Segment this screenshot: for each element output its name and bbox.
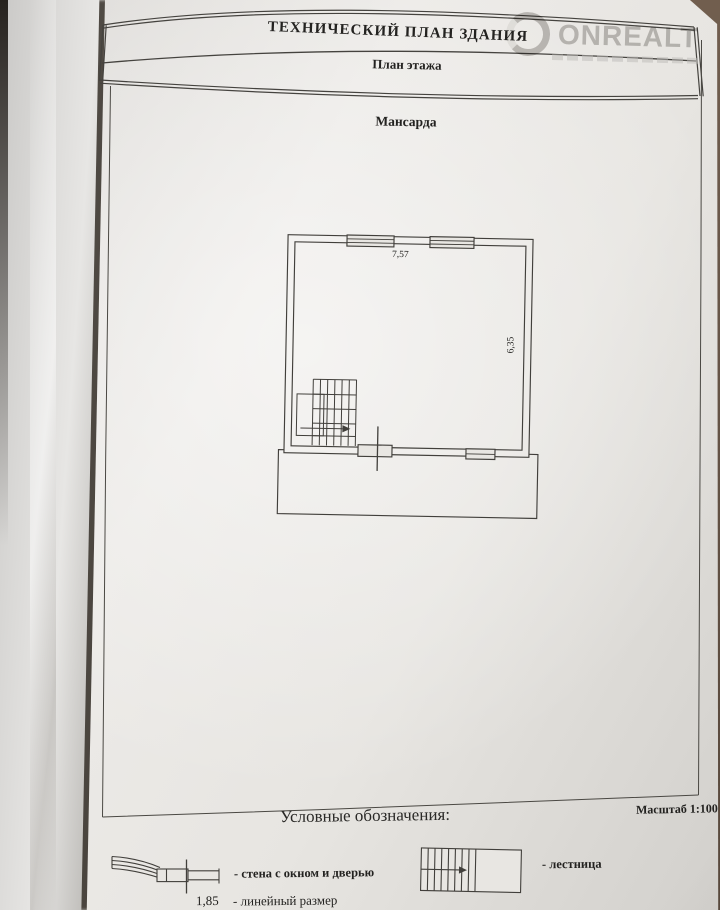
content-frame [103,40,702,817]
door-axis-line [377,426,378,470]
watermark-text: ONREALT [558,19,699,55]
legend-item-stairs-label: - лестница [542,857,602,873]
legend-item-wall-label: - стена с окном и дверью [234,865,374,881]
floor-label: Мансарда [358,113,454,131]
room-wall-inner [291,242,526,450]
door-opening-symbol [358,445,392,457]
window-symbol-top-left [347,235,394,247]
plan-drawing-layer [0,0,720,910]
legend-stairs-symbol [421,848,522,893]
floor-plan [277,234,542,519]
document-photo: ONREALT ТЕХНИЧЕСКИЙ ПЛАН ЗДАНИЯ План эта… [0,0,720,910]
room-wall-outer [284,235,533,458]
legend-heading: Условные обозначения: [280,805,450,827]
document-subtitle: План этажа [352,56,462,74]
legend-wall-symbol [112,857,219,894]
legend-item-linear-value: 1,85 [196,893,219,909]
stairs-direction-arrow-icon [342,425,350,432]
stairs-symbol [296,379,357,446]
window-symbol-bottom [466,449,495,460]
legend-item-linear-label: - линейный размер [233,892,337,909]
window-symbol-top-right [430,237,474,249]
dimension-top-width: 7,57 [392,250,409,260]
scale-label: Масштаб 1:100 [636,801,718,817]
dimension-right-height: 6,35 [506,337,516,354]
lower-floor-outline [277,450,538,519]
